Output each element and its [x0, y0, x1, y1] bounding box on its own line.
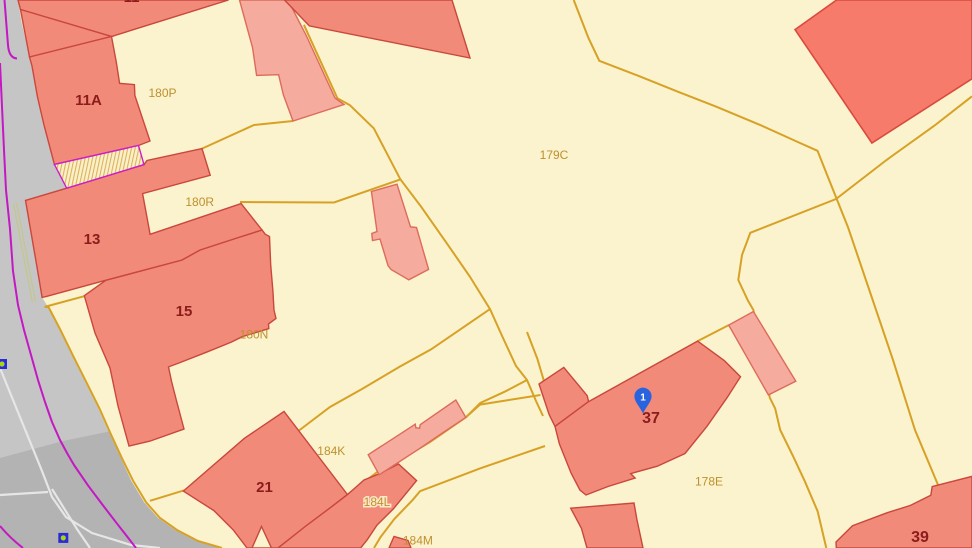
svg-text:180P: 180P: [148, 86, 176, 100]
svg-text:178E: 178E: [695, 475, 723, 489]
svg-text:37: 37: [642, 410, 660, 427]
svg-text:184M: 184M: [403, 534, 433, 548]
svg-text:39: 39: [911, 529, 929, 546]
svg-text:15: 15: [176, 303, 193, 320]
svg-text:11: 11: [124, 0, 140, 6]
svg-text:21: 21: [256, 479, 273, 496]
svg-text:179C: 179C: [540, 148, 569, 162]
svg-text:180R: 180R: [185, 195, 214, 209]
svg-text:180N: 180N: [240, 328, 269, 342]
svg-text:184K: 184K: [317, 444, 345, 458]
svg-text:184L: 184L: [364, 495, 391, 509]
svg-text:11A: 11A: [75, 92, 102, 109]
svg-text:1: 1: [640, 393, 646, 404]
svg-text:13: 13: [84, 231, 101, 248]
